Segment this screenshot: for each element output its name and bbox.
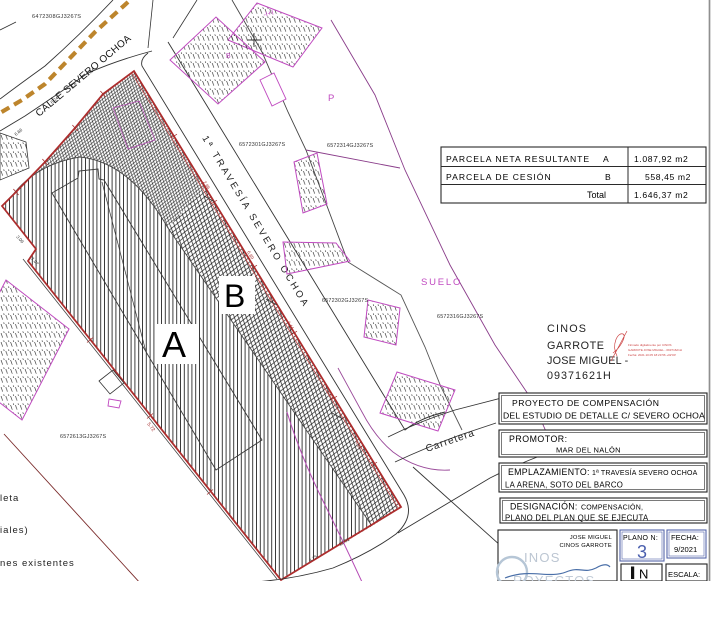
svg-text:EMPLAZAMIENTO:: EMPLAZAMIENTO: [508,467,590,477]
svg-text:09371621H: 09371621H [547,370,612,382]
svg-text:6572301GJ3267S: 6572301GJ3267S [239,142,285,148]
svg-text:1.646,37 m2: 1.646,37 m2 [634,190,688,200]
svg-text:PLANO DEL PLAN QUE SE EJECUTA: PLANO DEL PLAN QUE SE EJECUTA [505,514,649,523]
svg-text:SUELO: SUELO [421,277,462,288]
svg-text:1.087,92 m2: 1.087,92 m2 [634,154,688,164]
svg-text:N: N [639,567,648,582]
svg-text:B: B [605,172,611,182]
svg-text:GARROTE: GARROTE [547,340,605,352]
svg-text:PROMOTOR:: PROMOTOR: [509,434,568,444]
svg-text:CINOS GARROTE: CINOS GARROTE [559,543,612,549]
svg-text:558,45 m2: 558,45 m2 [645,172,691,182]
svg-text:PLANO N:: PLANO N: [623,535,658,542]
svg-text:JOSE MIGUEL -: JOSE MIGUEL - [547,355,629,367]
svg-text:6572613GJ3267S: 6572613GJ3267S [60,434,106,440]
svg-text:B: B [226,53,231,60]
svg-text:nes existentes: nes existentes [0,558,75,569]
svg-text:MAR DEL NALÓN: MAR DEL NALÓN [556,446,621,455]
svg-text:B: B [224,278,245,314]
svg-text:DEL ESTUDIO DE DETALLE C/ SEVE: DEL ESTUDIO DE DETALLE C/ SEVERO OCHOA [503,411,705,421]
svg-text:PARCELA DE CESIÓN: PARCELA DE CESIÓN [446,172,552,182]
svg-text:INOS: INOS [524,550,561,565]
svg-text:leta: leta [0,493,19,504]
svg-text:COMPENSACIÓN,: COMPENSACIÓN, [581,503,643,512]
svg-text:9/2021: 9/2021 [674,545,697,554]
svg-text:6572314GJ3267S: 6572314GJ3267S [327,143,373,149]
svg-text:Total: Total [587,190,606,200]
svg-text:FECHA:: FECHA: [671,533,699,542]
svg-text:6.66: 6.66 [13,127,23,137]
svg-text:PARCELA NETA RESULTANTE: PARCELA NETA RESULTANTE [446,154,590,164]
svg-text:1ª TRAVESÍA SEVERO OCHOA: 1ª TRAVESÍA SEVERO OCHOA [592,468,698,477]
svg-text:P: P [328,93,334,104]
svg-text:Carretera: Carretera [424,428,476,455]
svg-text:A: A [162,324,186,365]
svg-text:CINOS: CINOS [547,323,587,335]
svg-text:6572302GJ3267S: 6572302GJ3267S [322,298,368,304]
svg-text:ESCALA:: ESCALA: [668,570,700,579]
svg-text:3.09: 3.09 [15,234,25,244]
svg-text:Firmado digitalmente por CINOS: Firmado digitalmente por CINOS [628,343,672,347]
svg-text:LA ARENA, SOTO DEL BARCO: LA ARENA, SOTO DEL BARCO [505,481,623,490]
svg-text:3: 3 [637,542,647,562]
svg-text:PROYECTO DE COMPENSACIÓN: PROYECTO DE COMPENSACIÓN [512,398,659,408]
svg-text:A: A [603,154,609,164]
svg-text:GARROTE JOSE MIGUEL - 09371621: GARROTE JOSE MIGUEL - 09371621H [628,348,682,352]
svg-text:6572316GJ3267S: 6572316GJ3267S [437,314,483,320]
svg-text:5.72: 5.72 [145,422,156,434]
svg-text:ROYECTOS: ROYECTOS [513,573,595,588]
svg-text:DESIGNACIÓN:: DESIGNACIÓN: [510,502,578,512]
svg-text:6472308GJ3267S: 6472308GJ3267S [32,14,81,20]
svg-text:Fecha: 2021.10.05 18:23:56 +02: Fecha: 2021.10.05 18:23:56 +02'00' [628,353,676,357]
svg-text:JOSE MIGUEL: JOSE MIGUEL [570,535,613,541]
svg-text:iales): iales) [0,525,29,536]
